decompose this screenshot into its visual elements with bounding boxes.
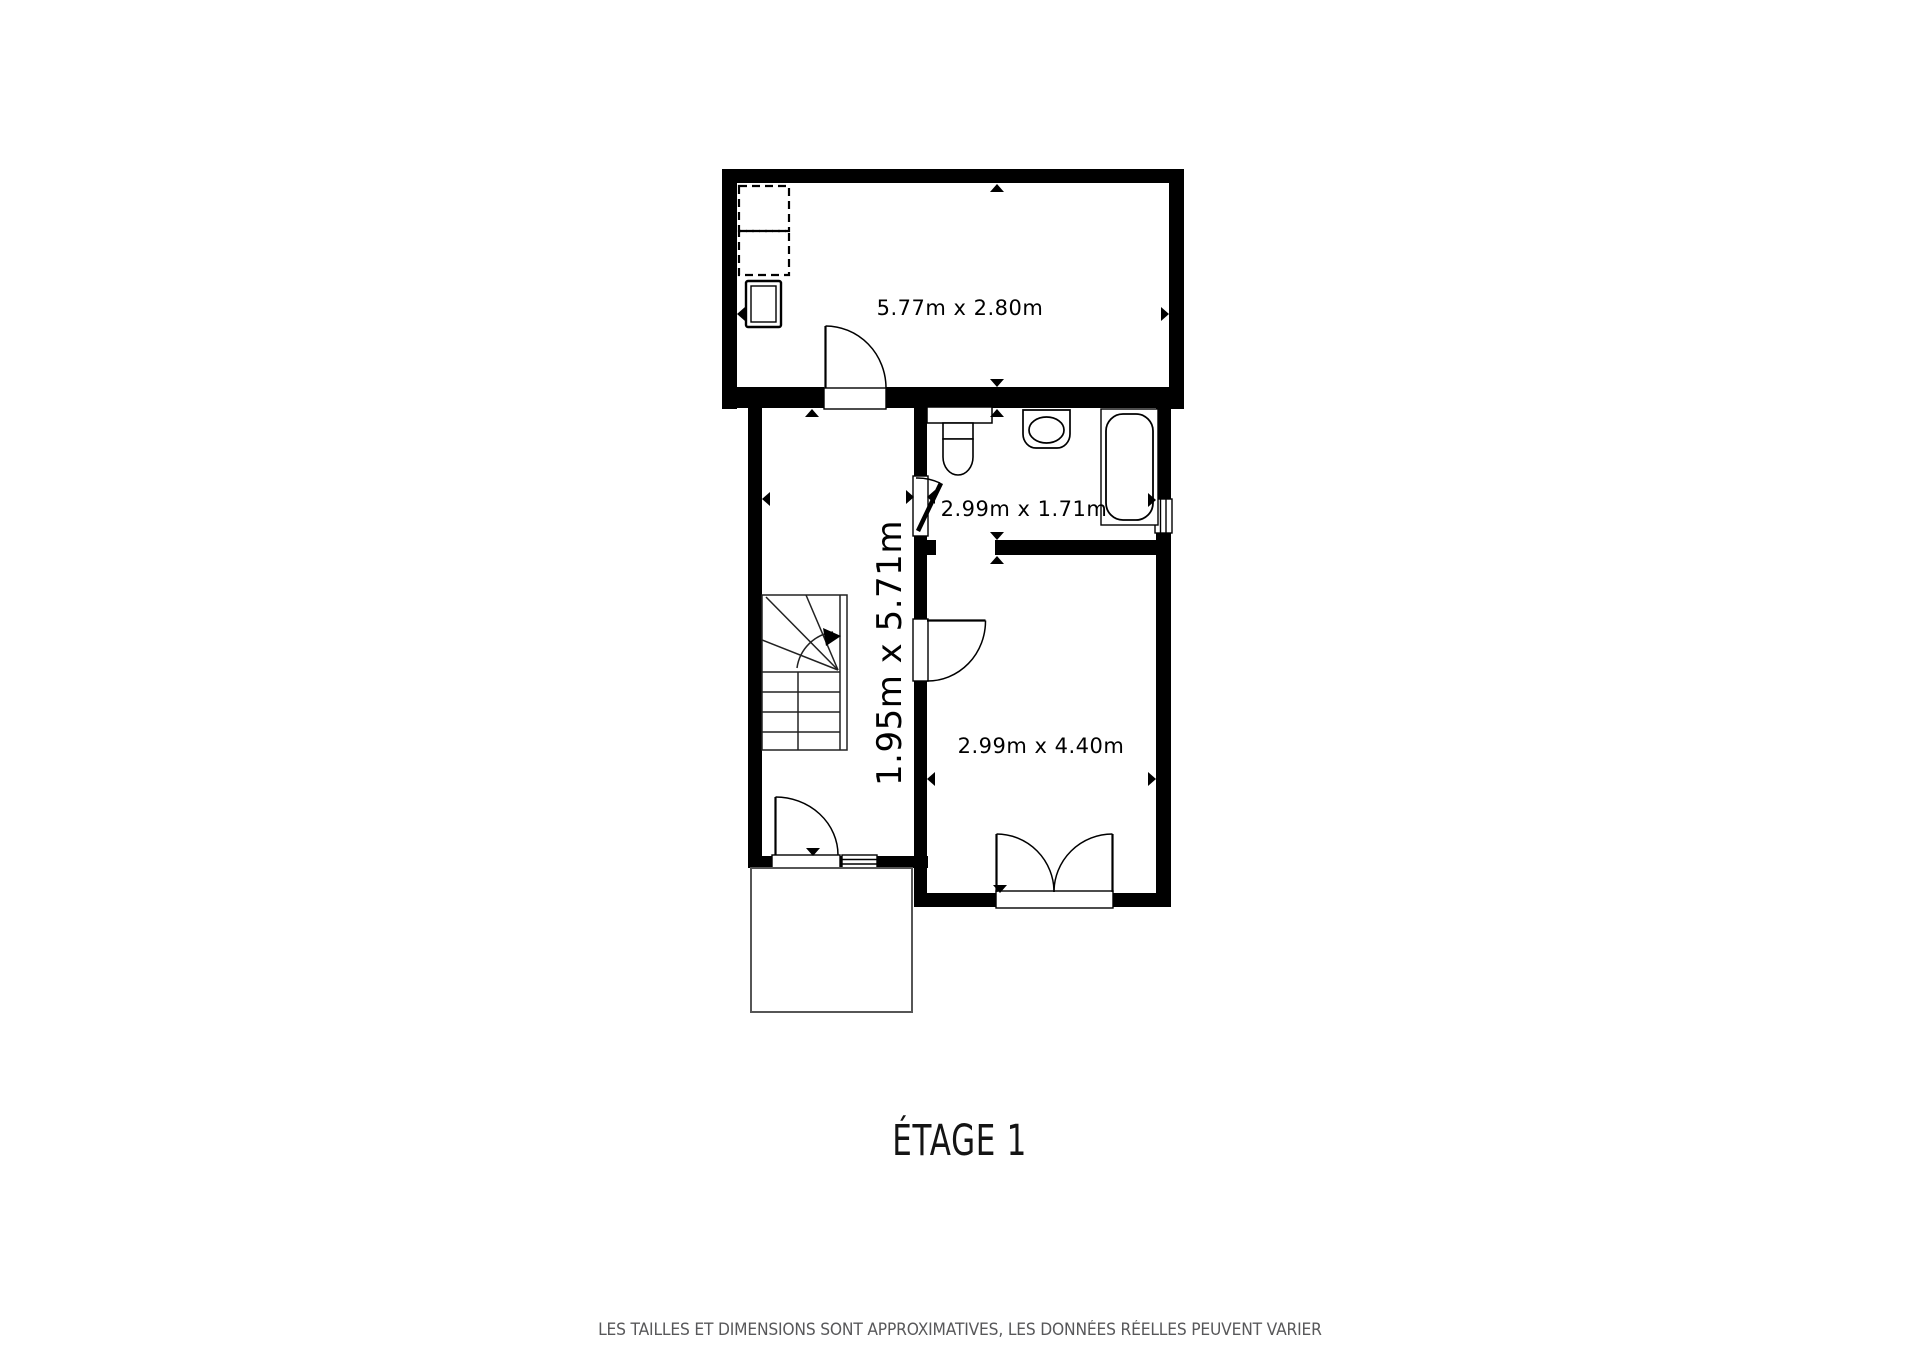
top-room-door-opening xyxy=(824,388,886,409)
bedroom-door-arc xyxy=(927,621,986,682)
double-door-opening xyxy=(996,891,1113,908)
hall-door-opening xyxy=(772,855,840,869)
dimension-markers xyxy=(737,184,1169,893)
marker-left xyxy=(927,772,935,786)
bathroom-counter xyxy=(927,407,992,423)
marker-up xyxy=(990,184,1004,192)
hall-window xyxy=(842,855,877,869)
wall-bath-bottom-stub xyxy=(914,540,936,555)
marker-down xyxy=(990,532,1004,540)
porch-outline xyxy=(751,868,912,1012)
floor-title: ÉTAGE 1 xyxy=(0,1116,1920,1166)
toilet-tank xyxy=(943,423,973,439)
wall-bath-bottom xyxy=(995,540,1171,555)
wall-mid-band-right xyxy=(886,387,1184,408)
wall-mid-band-left xyxy=(722,387,824,408)
marker-right xyxy=(1148,772,1156,786)
floor-title-text: ÉTAGE 1 xyxy=(893,1116,1028,1166)
stair-direction-arrow xyxy=(823,628,841,646)
double-door-right-arc xyxy=(1054,834,1113,892)
bottom-room-dimensions: 2.99m x 4.40m xyxy=(891,734,1191,758)
marker-up xyxy=(805,409,819,417)
marker-right xyxy=(1161,307,1169,321)
marker-left xyxy=(737,307,745,321)
walls xyxy=(722,169,1184,907)
staircase xyxy=(762,595,847,750)
top-room-door-arc xyxy=(826,326,887,388)
dashed-fixture-lower xyxy=(739,231,789,275)
wall-hall-left xyxy=(748,387,762,868)
hall-door-arc xyxy=(776,797,839,855)
wall-top-room-left xyxy=(722,169,737,409)
bathroom-dimensions: 2.99m x 1.71m xyxy=(874,497,1174,521)
top-room-dimensions: 5.77m x 2.80m xyxy=(810,296,1110,320)
wall-top-room-right xyxy=(1169,169,1184,409)
marker-down xyxy=(990,379,1004,387)
wall-top-room-top xyxy=(722,169,1184,183)
disclaimer-text-inner: LES TAILLES ET DIMENSIONS SONT APPROXIMA… xyxy=(598,1320,1322,1339)
bedroom-door-opening xyxy=(913,619,928,681)
floor-plan: 5.77m x 2.80m 2.99m x 1.71m 1.95m x 5.71… xyxy=(0,0,1920,1358)
dashed-fixture-upper xyxy=(739,186,789,231)
toilet-bowl xyxy=(943,439,973,475)
marker-left xyxy=(762,492,770,506)
marker-up xyxy=(990,556,1004,564)
disclaimer-text: LES TAILLES ET DIMENSIONS SONT APPROXIMA… xyxy=(0,1320,1920,1339)
double-door-left-arc xyxy=(997,834,1055,892)
